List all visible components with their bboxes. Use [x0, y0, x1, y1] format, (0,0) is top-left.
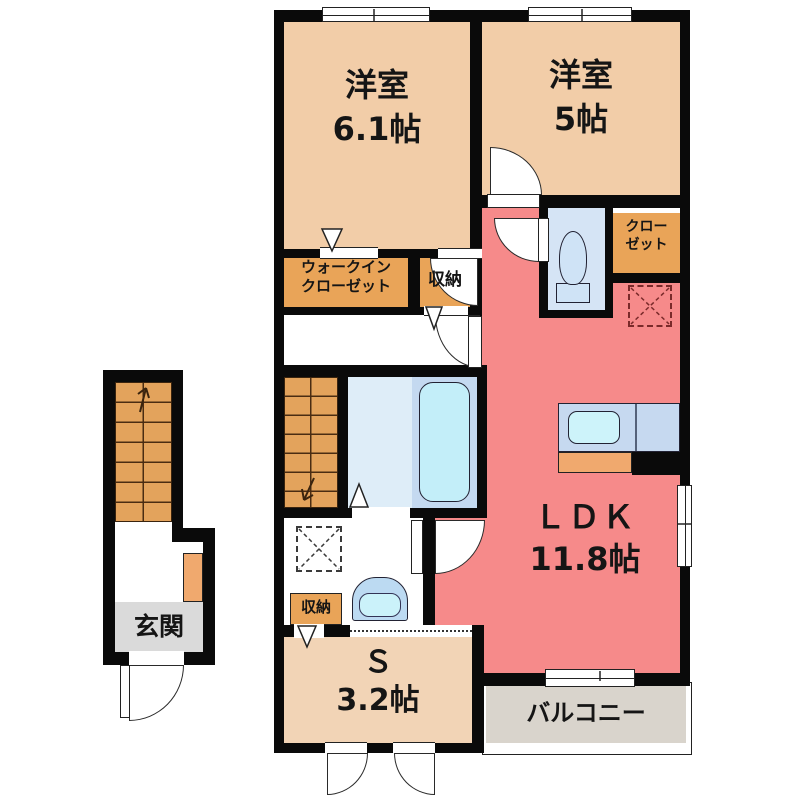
label-entrance: 玄関 [113, 613, 205, 641]
label-ldk: ＬＤＫ 11.8帖 [495, 500, 675, 578]
label-room5: 洋室 5帖 [482, 58, 680, 138]
kitchen-sink-icon [568, 411, 620, 444]
label-storage-bottom: 収納 [290, 599, 342, 616]
wall-toilet-bottom [539, 310, 613, 318]
toilet-tank-icon [556, 283, 590, 303]
washbasin-bowl-icon [359, 593, 401, 617]
service-size: 3.2帖 [284, 684, 472, 718]
label-balcony: バルコニー [486, 700, 686, 727]
kitchen-counter-divider [635, 404, 637, 451]
label-storage-top: 収納 [420, 271, 470, 290]
opening-storage-bottom [294, 624, 324, 638]
wall-bath-right [477, 365, 487, 518]
refrigerator-space [628, 285, 672, 327]
wall-hall-bottom [274, 365, 487, 377]
kitchen-lower-cabinet [558, 452, 632, 473]
wall-annex-top [103, 370, 183, 382]
wall-wic-storage-divider [408, 249, 420, 315]
wall-rooms-divider [470, 10, 482, 249]
doorway-entrance [129, 651, 184, 666]
room5-size: 5帖 [482, 102, 680, 138]
door-leaf-hallway [468, 316, 482, 368]
wall-service-bottom [274, 743, 484, 753]
label-service: Ｓ 3.2帖 [284, 646, 472, 717]
door-arc-service-left [327, 753, 368, 795]
wall-outer-right [680, 10, 690, 686]
door-leaf-entrance [120, 665, 130, 718]
room61-size: 6.1帖 [284, 112, 470, 148]
wic-line2: クローゼット [284, 278, 408, 295]
door-leaf-toilet [538, 218, 549, 262]
bathtub [419, 382, 470, 502]
door-leaf-washroom [411, 520, 423, 574]
label-closet: クロー ゼット [613, 220, 680, 253]
room5-name: 洋室 [482, 58, 680, 94]
door-leaf-room5 [487, 194, 540, 208]
floor-plan: 洋室 6.1帖 洋室 5帖 ウォークイン クローゼット 収納 クロー ゼット Ｌ… [0, 0, 800, 800]
ldk-name: ＬＤＫ [495, 500, 675, 536]
door-arc-service-right [394, 753, 435, 795]
room61-name: 洋室 [284, 68, 470, 104]
window-room61 [322, 7, 430, 22]
wall-annex-right-upper [172, 370, 183, 538]
wall-outer-left [274, 10, 284, 753]
stairs-upper [284, 377, 338, 508]
bath-washplace [348, 373, 412, 510]
wic-line1: ウォークイン [284, 259, 408, 276]
closet-line1: クロー [613, 220, 680, 236]
wall-closet-bottom [605, 273, 690, 283]
stairs-entrance [115, 382, 172, 522]
wall-annex-right-lower [203, 528, 215, 665]
washing-machine-space [296, 526, 342, 572]
opening-storage-top [424, 306, 468, 316]
label-wic: ウォークイン クローゼット [284, 259, 408, 295]
opening-bath [352, 507, 410, 519]
door-arc-entrance [129, 665, 184, 721]
wall-washroom-ldk [423, 518, 435, 637]
ldk-size: 11.8帖 [495, 542, 675, 578]
wall-service-right [472, 625, 484, 753]
service-name: Ｓ [284, 646, 472, 680]
shoe-cabinet [183, 553, 203, 602]
sliding-door-balcony [545, 669, 635, 687]
window-ldk-right [677, 485, 692, 567]
toilet-bowl-icon [559, 231, 587, 285]
closet-line2: ゼット [613, 238, 680, 254]
wall-kitchen-stub [632, 452, 680, 475]
wall-toilet-right [605, 200, 613, 318]
label-room61: 洋室 6.1帖 [284, 68, 470, 148]
service-counter-window [350, 625, 472, 637]
window-room5 [528, 7, 632, 22]
wall-stairs-right [338, 365, 348, 518]
